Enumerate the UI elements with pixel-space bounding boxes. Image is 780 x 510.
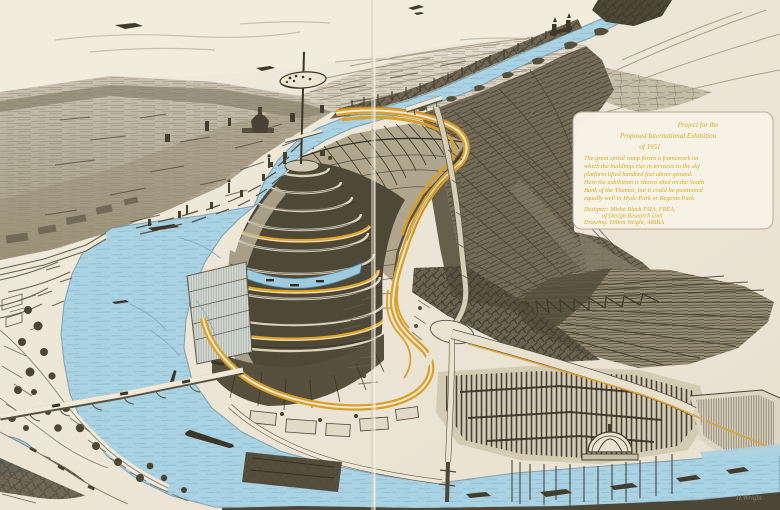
svg-text:Bank of the Thames, but i: Bank of the Thames, but it could be posi… bbox=[584, 187, 704, 194]
svg-text:equally well in Hyde Park: equally well in Hyde Park or Regents Par… bbox=[584, 195, 696, 202]
svg-text:Here the exhibition is sho: Here the exhibition is shown sited on th… bbox=[583, 179, 704, 186]
svg-text:Proposed International Exhib: Proposed International Exhibition bbox=[619, 132, 717, 140]
svg-text:The great spiral ramp form: The great spiral ramp forms a framework … bbox=[584, 155, 698, 162]
svg-text:H.Wright: H.Wright bbox=[735, 494, 763, 502]
svg-text:Drawing: Hilton Wright, ARI: Drawing: Hilton Wright, ARIBA bbox=[583, 219, 664, 226]
svg-text:of 1951: of 1951 bbox=[639, 143, 660, 151]
svg-text:Project for the: Project for the bbox=[677, 121, 719, 129]
svg-text:which the buildings rise i: which the buildings rise in terraces to … bbox=[584, 163, 700, 170]
svg-text:platform lifted hundred fee: platform lifted hundred feet above groun… bbox=[583, 171, 693, 178]
